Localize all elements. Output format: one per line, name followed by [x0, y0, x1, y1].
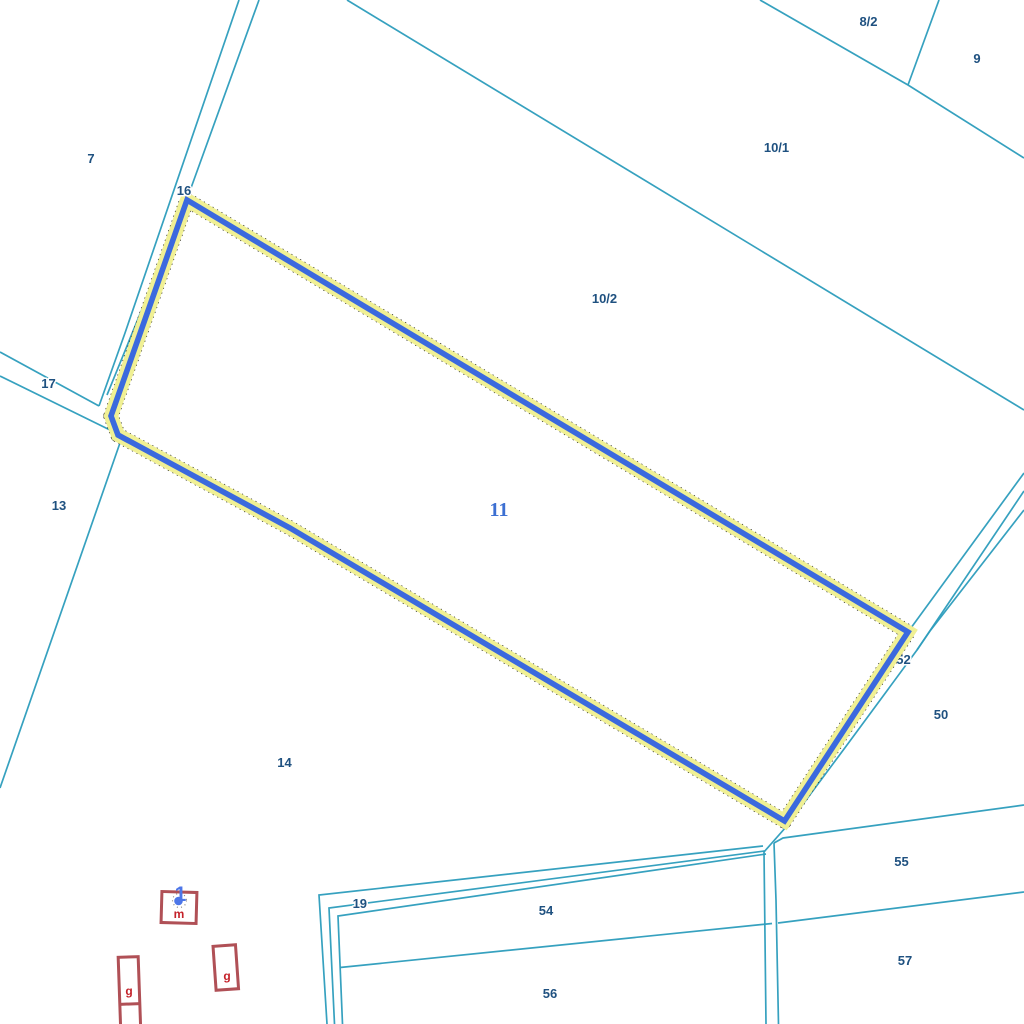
svg-text:17: 17 [41, 376, 55, 391]
svg-text:14: 14 [277, 755, 292, 770]
svg-text:10/2: 10/2 [592, 291, 617, 306]
svg-text:10/1: 10/1 [764, 140, 789, 155]
svg-text:1: 1 [175, 883, 187, 906]
svg-text:11: 11 [490, 499, 509, 521]
svg-text:g: g [223, 969, 230, 983]
svg-text:13: 13 [52, 498, 66, 513]
svg-text:57: 57 [898, 953, 912, 968]
svg-text:9: 9 [973, 51, 980, 66]
svg-text:m: m [174, 907, 185, 921]
svg-text:56: 56 [543, 986, 557, 1001]
svg-text:g: g [125, 984, 132, 998]
svg-text:54: 54 [539, 903, 554, 918]
svg-text:19: 19 [353, 896, 367, 911]
svg-text:8/2: 8/2 [859, 14, 877, 29]
svg-text:7: 7 [87, 151, 94, 166]
svg-text:55: 55 [894, 854, 908, 869]
svg-text:50: 50 [934, 707, 948, 722]
svg-text:16: 16 [177, 183, 191, 198]
